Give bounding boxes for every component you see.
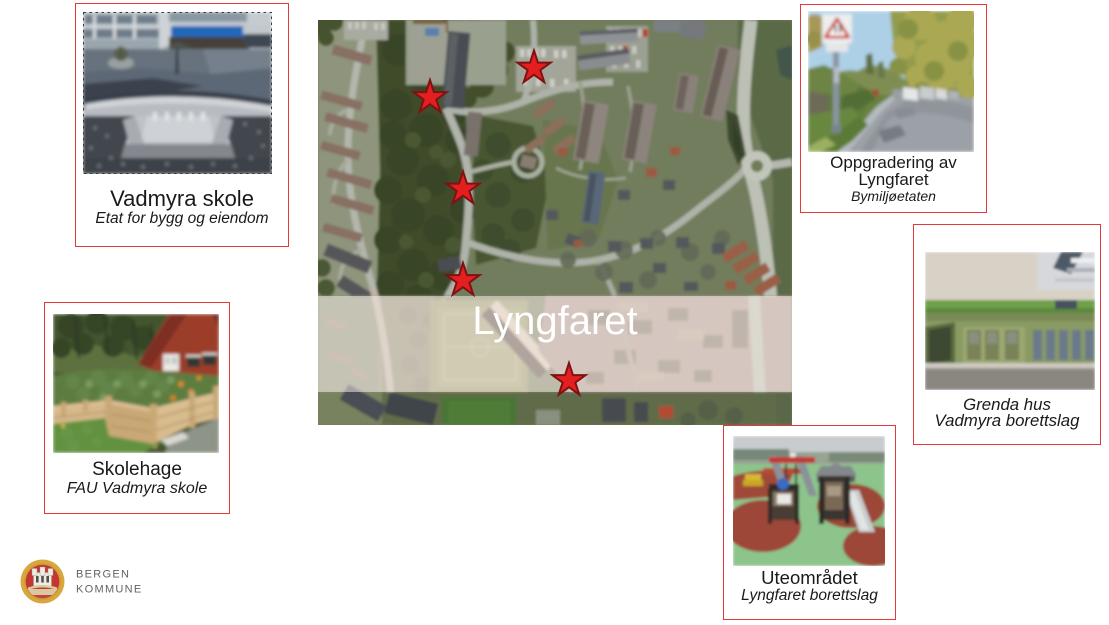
svg-text:Lyngfaret: Lyngfaret: [472, 299, 637, 343]
svg-text:KOMMUNE: KOMMUNE: [76, 584, 143, 596]
svg-text:BERGEN: BERGEN: [76, 569, 130, 581]
